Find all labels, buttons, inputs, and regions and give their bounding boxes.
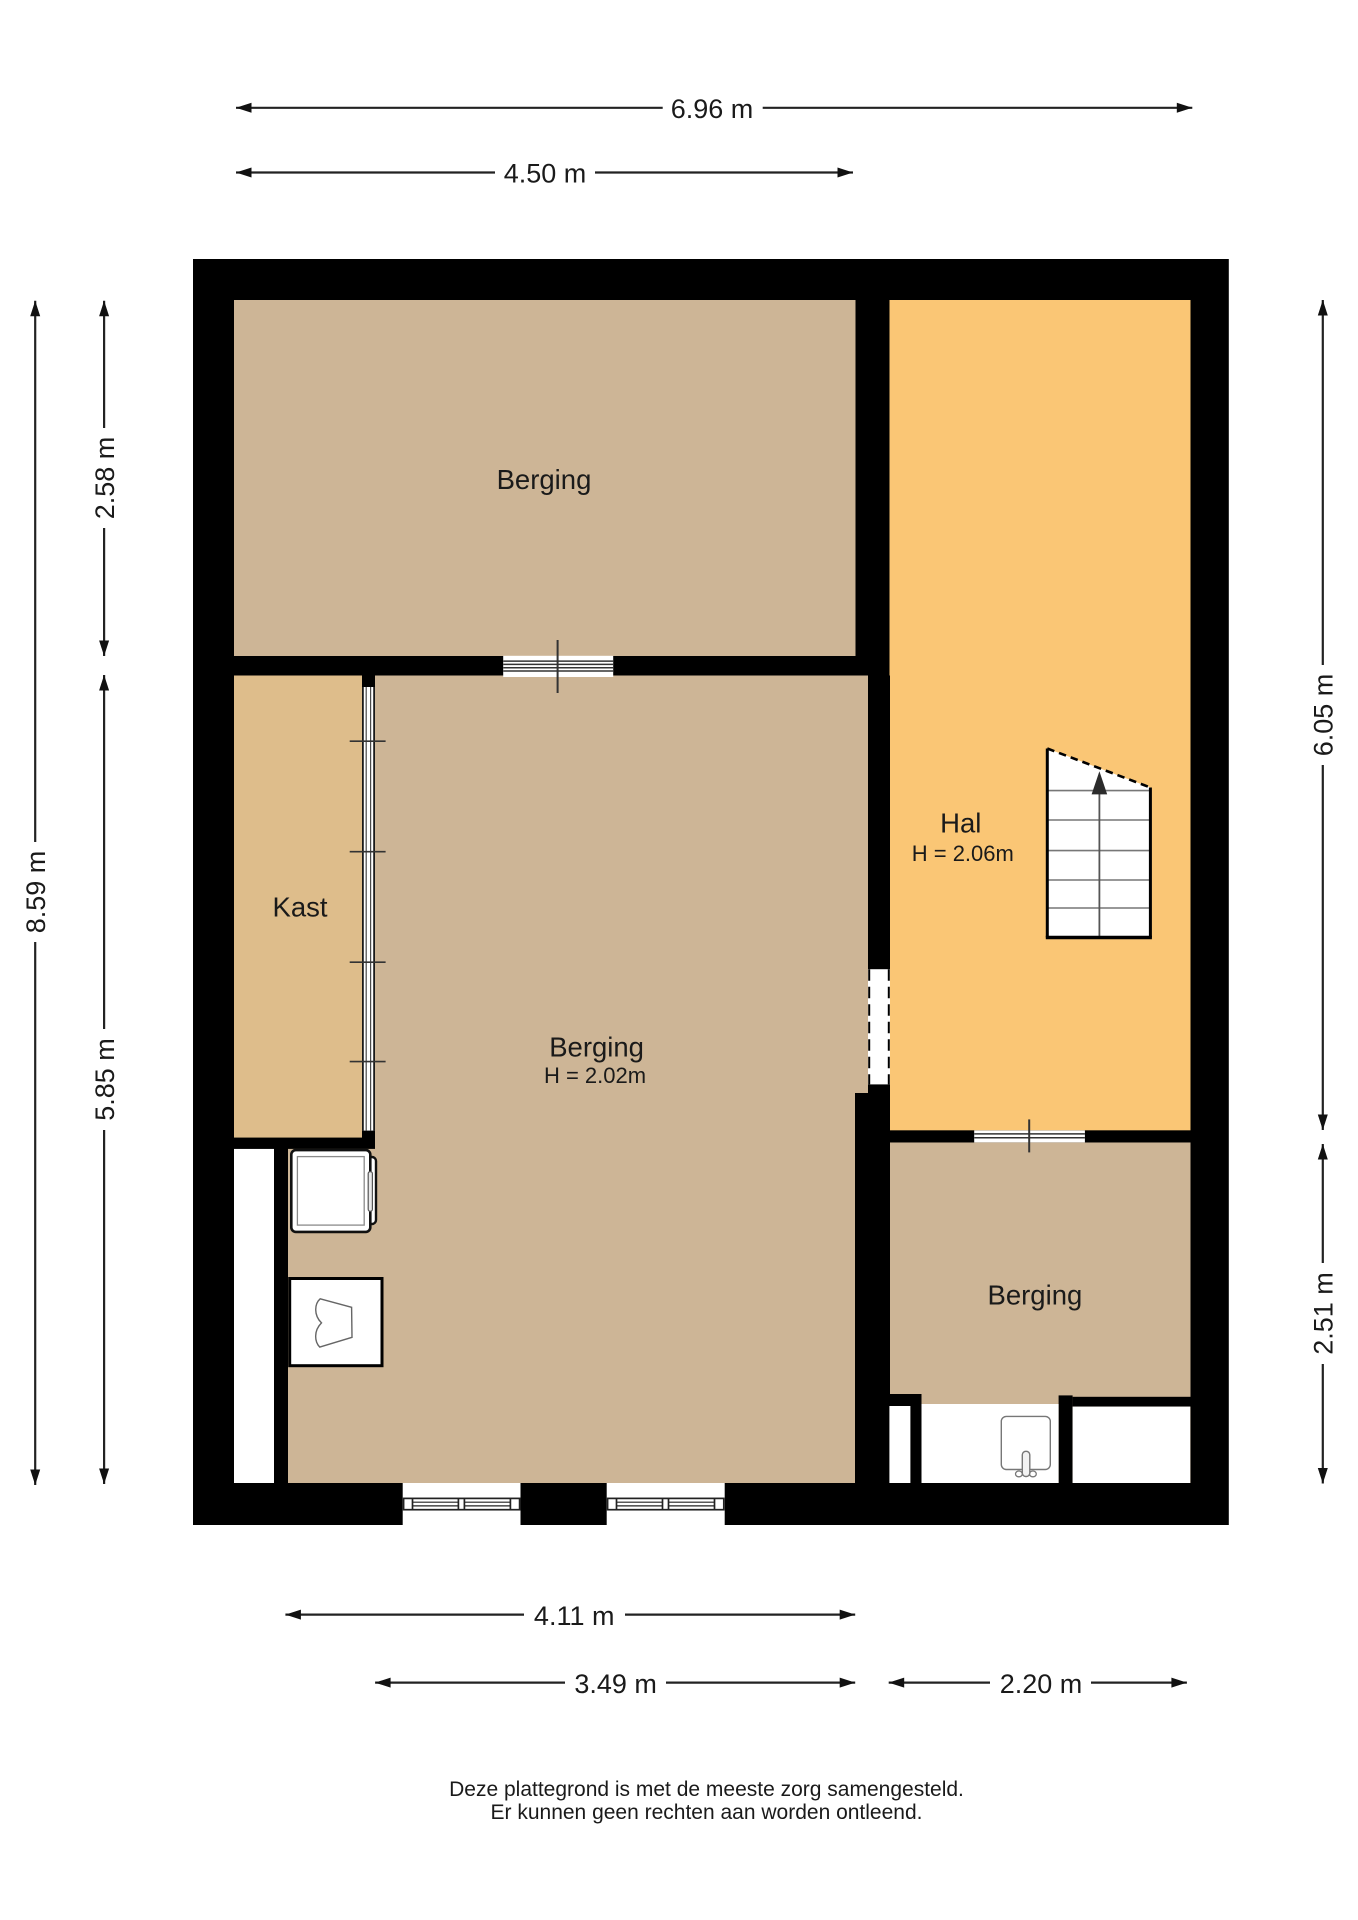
svg-text:Deze plattegrond is met de mee: Deze plattegrond is met de meeste zorg s… [449,1778,964,1801]
svg-text:Hal: Hal [940,807,981,838]
svg-text:Berging: Berging [988,1280,1083,1311]
svg-text:2.20 m: 2.20 m [1000,1669,1083,1699]
svg-text:8.59 m: 8.59 m [21,851,51,934]
svg-text:6.96 m: 6.96 m [671,94,754,124]
svg-text:4.50 m: 4.50 m [504,159,587,189]
svg-text:6.05 m: 6.05 m [1309,674,1339,757]
svg-text:H = 2.06m: H = 2.06m [912,841,1014,866]
svg-text:3.49 m: 3.49 m [574,1669,657,1699]
svg-text:5.85 m: 5.85 m [90,1038,120,1121]
svg-text:Berging: Berging [497,464,592,495]
svg-text:4.11 m: 4.11 m [534,1601,615,1631]
svg-text:2.58 m: 2.58 m [90,437,120,520]
svg-text:H = 2.02m: H = 2.02m [544,1063,646,1088]
svg-text:Kast: Kast [272,891,327,922]
svg-text:2.51 m: 2.51 m [1309,1272,1339,1355]
svg-text:Er kunnen geen rechten aan wor: Er kunnen geen rechten aan worden ontlee… [491,1801,923,1824]
svg-text:Berging: Berging [549,1032,644,1063]
